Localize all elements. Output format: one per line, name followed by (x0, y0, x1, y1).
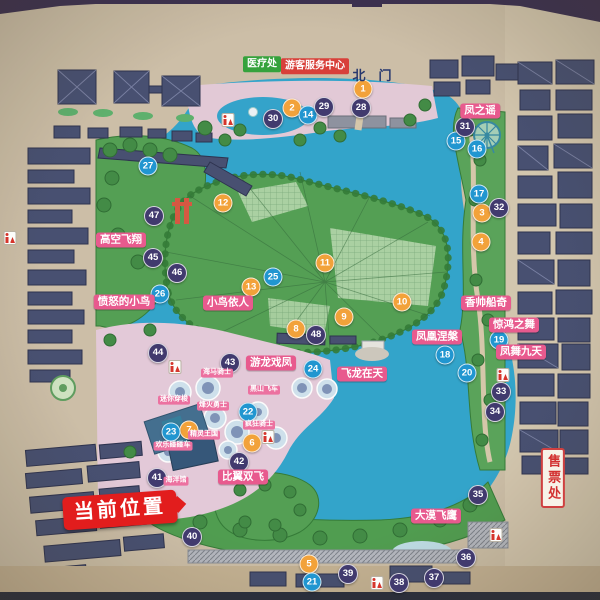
ride-label: 愤怒的小鸟 (94, 294, 155, 309)
current-location-label: 当前位置 (62, 490, 178, 531)
map-marker-21: 21 (303, 573, 322, 592)
ride-label: 欢乐碰碰车 (154, 442, 193, 451)
ride-label: 凤舞九天 (496, 344, 546, 359)
map-marker-47: 47 (144, 206, 164, 226)
ride-label: 黑山飞车 (248, 386, 280, 395)
map-marker-44: 44 (148, 343, 168, 363)
map-marker-13: 13 (242, 278, 261, 297)
ride-label: 游龙戏凤 (246, 355, 296, 370)
ride-label: 烽火勇士 (197, 402, 229, 411)
ride-label: 凤凰涅槃 (412, 329, 462, 344)
map-marker-33: 33 (491, 382, 511, 402)
map-marker-27: 27 (139, 157, 158, 176)
map-marker-32: 32 (489, 198, 509, 218)
restroom-icon (169, 360, 182, 374)
map-marker-5: 5 (300, 555, 319, 574)
ride-label: 高空飞翔 (96, 232, 146, 247)
ride-label: 香帅船奇 (461, 295, 511, 310)
ride-label: 精灵王国 (188, 431, 220, 440)
map-marker-23: 23 (162, 423, 181, 442)
restroom-icon (262, 430, 275, 444)
park-map-photo: 1234567891011121314151617181920212223242… (0, 0, 600, 600)
ride-label: 海马骑士 (201, 369, 233, 378)
ride-label: 疯狂骑士 (243, 421, 275, 430)
map-marker-25: 25 (264, 268, 283, 287)
ride-label: 小鸟依人 (203, 295, 253, 310)
map-marker-48: 48 (306, 325, 326, 345)
ride-label: 迷你穿梭 (158, 396, 190, 405)
ride-label: 凤之谣 (460, 103, 500, 118)
ride-label: 医疗处 (243, 56, 281, 72)
restroom-icon (497, 368, 510, 382)
map-marker-12: 12 (214, 194, 233, 213)
map-marker-16: 16 (468, 140, 487, 159)
map-marker-18: 18 (436, 346, 455, 365)
map-marker-28: 28 (351, 98, 371, 118)
restroom-icon (371, 576, 384, 590)
restroom-icon (222, 113, 235, 127)
map-marker-39: 39 (338, 564, 358, 584)
map-marker-10: 10 (393, 293, 412, 312)
map-marker-6: 6 (243, 434, 262, 453)
map-marker-45: 45 (143, 248, 163, 268)
map-marker-35: 35 (468, 485, 488, 505)
map-marker-40: 40 (182, 527, 202, 547)
map-marker-36: 36 (456, 548, 476, 568)
ride-label: 比翼双飞 (218, 469, 268, 484)
ride-label: 海洋馆 (164, 477, 189, 486)
map-marker-34: 34 (485, 402, 505, 422)
map-marker-31: 31 (455, 117, 475, 137)
map-marker-8: 8 (287, 320, 306, 339)
ride-label: 飞龙在天 (337, 366, 387, 381)
map-marker-37: 37 (424, 568, 444, 588)
map-marker-17: 17 (470, 185, 489, 204)
map-marker-24: 24 (304, 360, 323, 379)
map-marker-11: 11 (316, 254, 335, 273)
map-annotations: 1234567891011121314151617181920212223242… (0, 0, 600, 600)
map-marker-22: 22 (239, 403, 258, 422)
ride-label: 大漠飞鹰 (411, 508, 461, 523)
map-marker-29: 29 (314, 97, 334, 117)
map-marker-9: 9 (335, 308, 354, 327)
north-gate-label: 北门 (339, 68, 404, 84)
ticket-office-label: 售票处 (541, 448, 565, 508)
restroom-icon (4, 231, 17, 245)
map-marker-4: 4 (472, 233, 491, 252)
map-marker-30: 30 (263, 109, 283, 129)
map-marker-38: 38 (389, 573, 409, 593)
ride-label: 惊鸿之舞 (489, 317, 539, 332)
map-marker-46: 46 (167, 263, 187, 283)
restroom-icon (490, 528, 503, 542)
map-marker-20: 20 (458, 364, 477, 383)
